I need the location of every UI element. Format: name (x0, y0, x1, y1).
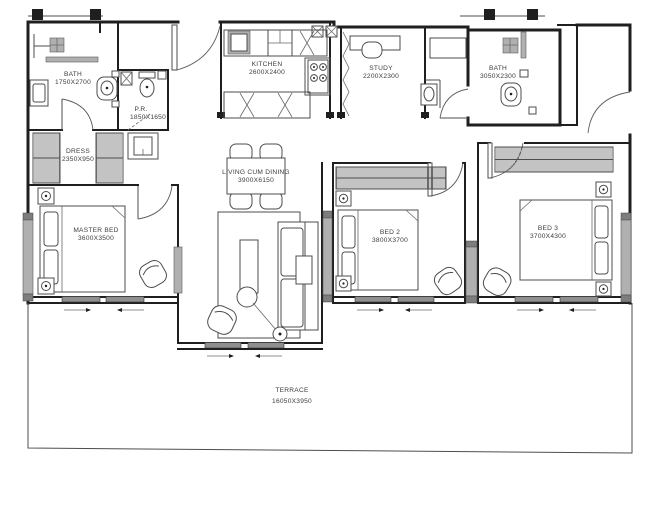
bath-right-door-swing (440, 89, 468, 118)
slide-direction-arrows (64, 308, 596, 358)
nightstand-lamp-icon (336, 276, 351, 291)
shower-icon (34, 34, 98, 62)
room-label-bath-left: BATH (64, 71, 82, 78)
room-label-bed2: BED 2 (380, 229, 400, 236)
nightstand-lamp-icon (596, 182, 611, 197)
room-dims-study: 2200X2300 (363, 73, 399, 80)
sliding-door-panels (62, 297, 598, 359)
desk-chair (362, 42, 382, 58)
shower-icon (503, 32, 526, 58)
wardrobe-symbol (495, 147, 613, 172)
room-label-study: STUDY (369, 65, 393, 72)
column-marker (90, 9, 101, 20)
shaft-x-symbol (312, 26, 337, 37)
coffee-table (240, 240, 258, 293)
top-right-door-swing (588, 92, 630, 133)
nightstand-lamp-icon (596, 282, 611, 296)
window-symbol (621, 213, 631, 302)
room-label-kitchen: KITCHEN (252, 61, 283, 68)
bath-left-door-swing (62, 99, 93, 130)
toilet-icon (139, 72, 155, 97)
washbasin-icon (421, 84, 437, 105)
hall-console (430, 38, 466, 58)
vanity-sink-icon (30, 80, 48, 106)
counter-break-lines (240, 93, 292, 117)
window-symbol (174, 247, 182, 293)
doors (62, 25, 630, 219)
toilet-icon (97, 71, 119, 107)
entrance-door-swing (172, 25, 220, 70)
kitchen-counter-bottom (224, 92, 310, 118)
armchair-symbol (480, 265, 514, 299)
room-label-living: LIVING CUM DINING (222, 169, 290, 176)
counter-break-lines (300, 31, 314, 55)
room-dims-terrace: 16050X3950 (272, 398, 312, 405)
wardrobe-symbol (336, 167, 446, 189)
column-marker (32, 9, 43, 20)
sofa-symbol (278, 222, 318, 330)
room-dims-bed3: 3700X4300 (530, 233, 566, 240)
room-label-bath-right: BATH (489, 65, 507, 72)
study-fixtures (343, 32, 466, 116)
room-dims-master-bed: 3600X3500 (78, 235, 114, 242)
bed-symbol (520, 200, 612, 280)
room-dims-kitchen: 2600X2400 (249, 69, 285, 76)
room-dims-bath-right: 3050X2300 (480, 73, 516, 80)
column-marker (527, 9, 538, 20)
window-symbol (466, 241, 477, 303)
armchair-symbol (137, 258, 170, 291)
room-label-dress: DRESS (66, 148, 90, 155)
master-bed-door-swing (138, 186, 172, 219)
wardrobe-symbol (96, 133, 123, 183)
nightstand-lamp-icon (336, 191, 351, 206)
fridge-icon (268, 30, 292, 56)
column-marker (484, 9, 495, 20)
terrace-outline (28, 303, 632, 453)
room-label-terrace: TERRACE (275, 387, 309, 394)
armchair-symbol (431, 264, 464, 297)
room-dims-living: 3900X6150 (238, 177, 274, 184)
window-symbol (323, 211, 332, 302)
wardrobe-symbol (33, 133, 60, 183)
bed3-furniture (480, 147, 613, 299)
utility-counter (128, 133, 158, 159)
room-label-pr: P.R. (135, 106, 148, 113)
room-dims-bath-left: 1750X2700 (55, 79, 91, 86)
room-label-master-bed: MASTER BED (73, 227, 118, 234)
nightstand-lamp-icon (38, 188, 54, 204)
kitchen-sink-icon (228, 31, 250, 54)
dining-table (227, 158, 285, 194)
room-label-bed3: BED 3 (538, 225, 558, 232)
closet-fold-line (343, 32, 349, 116)
sliding-door-tracks (28, 297, 630, 349)
nightstand-lamp-icon (38, 278, 54, 294)
bed2-furniture (336, 167, 465, 298)
hob-icon (308, 60, 328, 93)
dining-chair (230, 192, 252, 209)
window-symbol (23, 213, 33, 301)
room-dims-dress: 2350X950 (62, 156, 94, 163)
floor-plan-drawing: BATH 1750X2700 P.R. 1850X1650 DRESS 2350… (0, 0, 660, 513)
armchair-symbol (205, 303, 240, 338)
room-dims-bed2: 3800X3700 (372, 237, 408, 244)
room-dims-pr: 1850X1650 (130, 114, 166, 121)
floor-plan: BATH 1750X2700 P.R. 1850X1650 DRESS 2350… (0, 0, 660, 513)
dining-chair (260, 192, 282, 209)
